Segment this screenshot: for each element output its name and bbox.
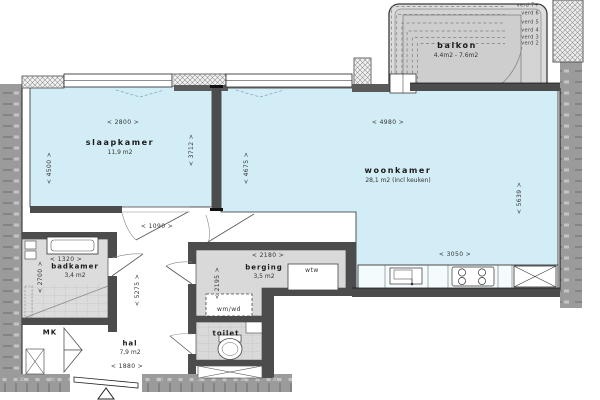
wall-mark: 30: [19, 379, 25, 384]
balkon-level-4: verd 4: [521, 29, 539, 34]
wall-mark: 30: [272, 379, 278, 384]
badkamer-name: badkamer: [51, 264, 99, 271]
cooktop-icon: [452, 267, 494, 286]
kitchen-counter: [358, 265, 558, 288]
badkamer-area: 3,4 m2: [64, 273, 85, 279]
wall-mark: 30: [240, 379, 246, 384]
balkon-level-2: verd 2: [521, 42, 539, 47]
dim-1090: < 1090 >: [141, 224, 173, 230]
wall-mark: 30: [157, 379, 163, 384]
woonkamer-area: 28,1 m2 (incl keuken): [365, 178, 430, 184]
toilet-shaft-icon: [198, 366, 262, 378]
meterkast-shaft-icon: [26, 349, 44, 374]
sink-icon: [390, 268, 422, 285]
wall-mark: 30: [49, 379, 55, 384]
dim-3712: < 3712 >: [189, 134, 195, 166]
meterkast-doors: [64, 328, 82, 372]
hal-name: hal: [122, 341, 137, 348]
woonkamer-door: [206, 214, 254, 242]
balkon-level-5: verd 5: [521, 21, 539, 26]
dim-2800: < 2800 >: [107, 120, 139, 126]
washer-dryer-label: wm/wd: [217, 307, 241, 313]
berging-name: berging: [245, 265, 283, 272]
counter-unit-icon: [514, 266, 556, 287]
wtw-label: wtw: [305, 268, 319, 274]
dim-1880: < 1880 >: [111, 364, 143, 370]
slaapkamer-area: 11,9 m2: [108, 150, 133, 156]
toilet-door: [170, 334, 192, 354]
balkon-area: 4.4m2 - 7.6m2: [434, 53, 478, 59]
dim-4500: < 4500 >: [47, 152, 53, 184]
dim-5639: < 5639 >: [517, 182, 523, 214]
dim-1320: < 1320 >: [50, 257, 82, 263]
wall-mark: 30: [197, 379, 203, 384]
balkon-level-6: verd 6: [521, 12, 539, 17]
dim-2195: < 2195 >: [215, 267, 221, 299]
floorplan: slaapkamer 11,9 m2 woonkamer 28,1 m2 (in…: [0, 0, 600, 400]
dim-4675: < 4675 >: [244, 152, 250, 184]
berging-door: [166, 262, 192, 284]
slaapkamer-name: slaapkamer: [86, 139, 154, 147]
toilet-name: toilet: [212, 331, 239, 338]
meterkast-label: MK: [43, 330, 57, 337]
dim-3050: < 3050 >: [439, 252, 471, 258]
balkon-name: balkon: [437, 42, 477, 50]
entrance-arrow-icon: [98, 388, 114, 399]
floorplan-drawing: [0, 0, 600, 400]
woonkamer-name: woonkamer: [365, 167, 432, 175]
dim-5275: < 5275 >: [135, 274, 141, 306]
entrance-door: [74, 377, 138, 388]
dim-4980: < 4980 >: [372, 120, 404, 126]
berging-area: 3,5 m2: [253, 274, 274, 280]
hal-area: 7,9 m2: [119, 350, 140, 356]
bathtub-icon: [47, 237, 98, 254]
dim-2180: < 2180 >: [252, 253, 284, 259]
dim-2700: < 2700 >: [38, 261, 44, 293]
balkon-level-7: verd 7+: [517, 4, 539, 9]
